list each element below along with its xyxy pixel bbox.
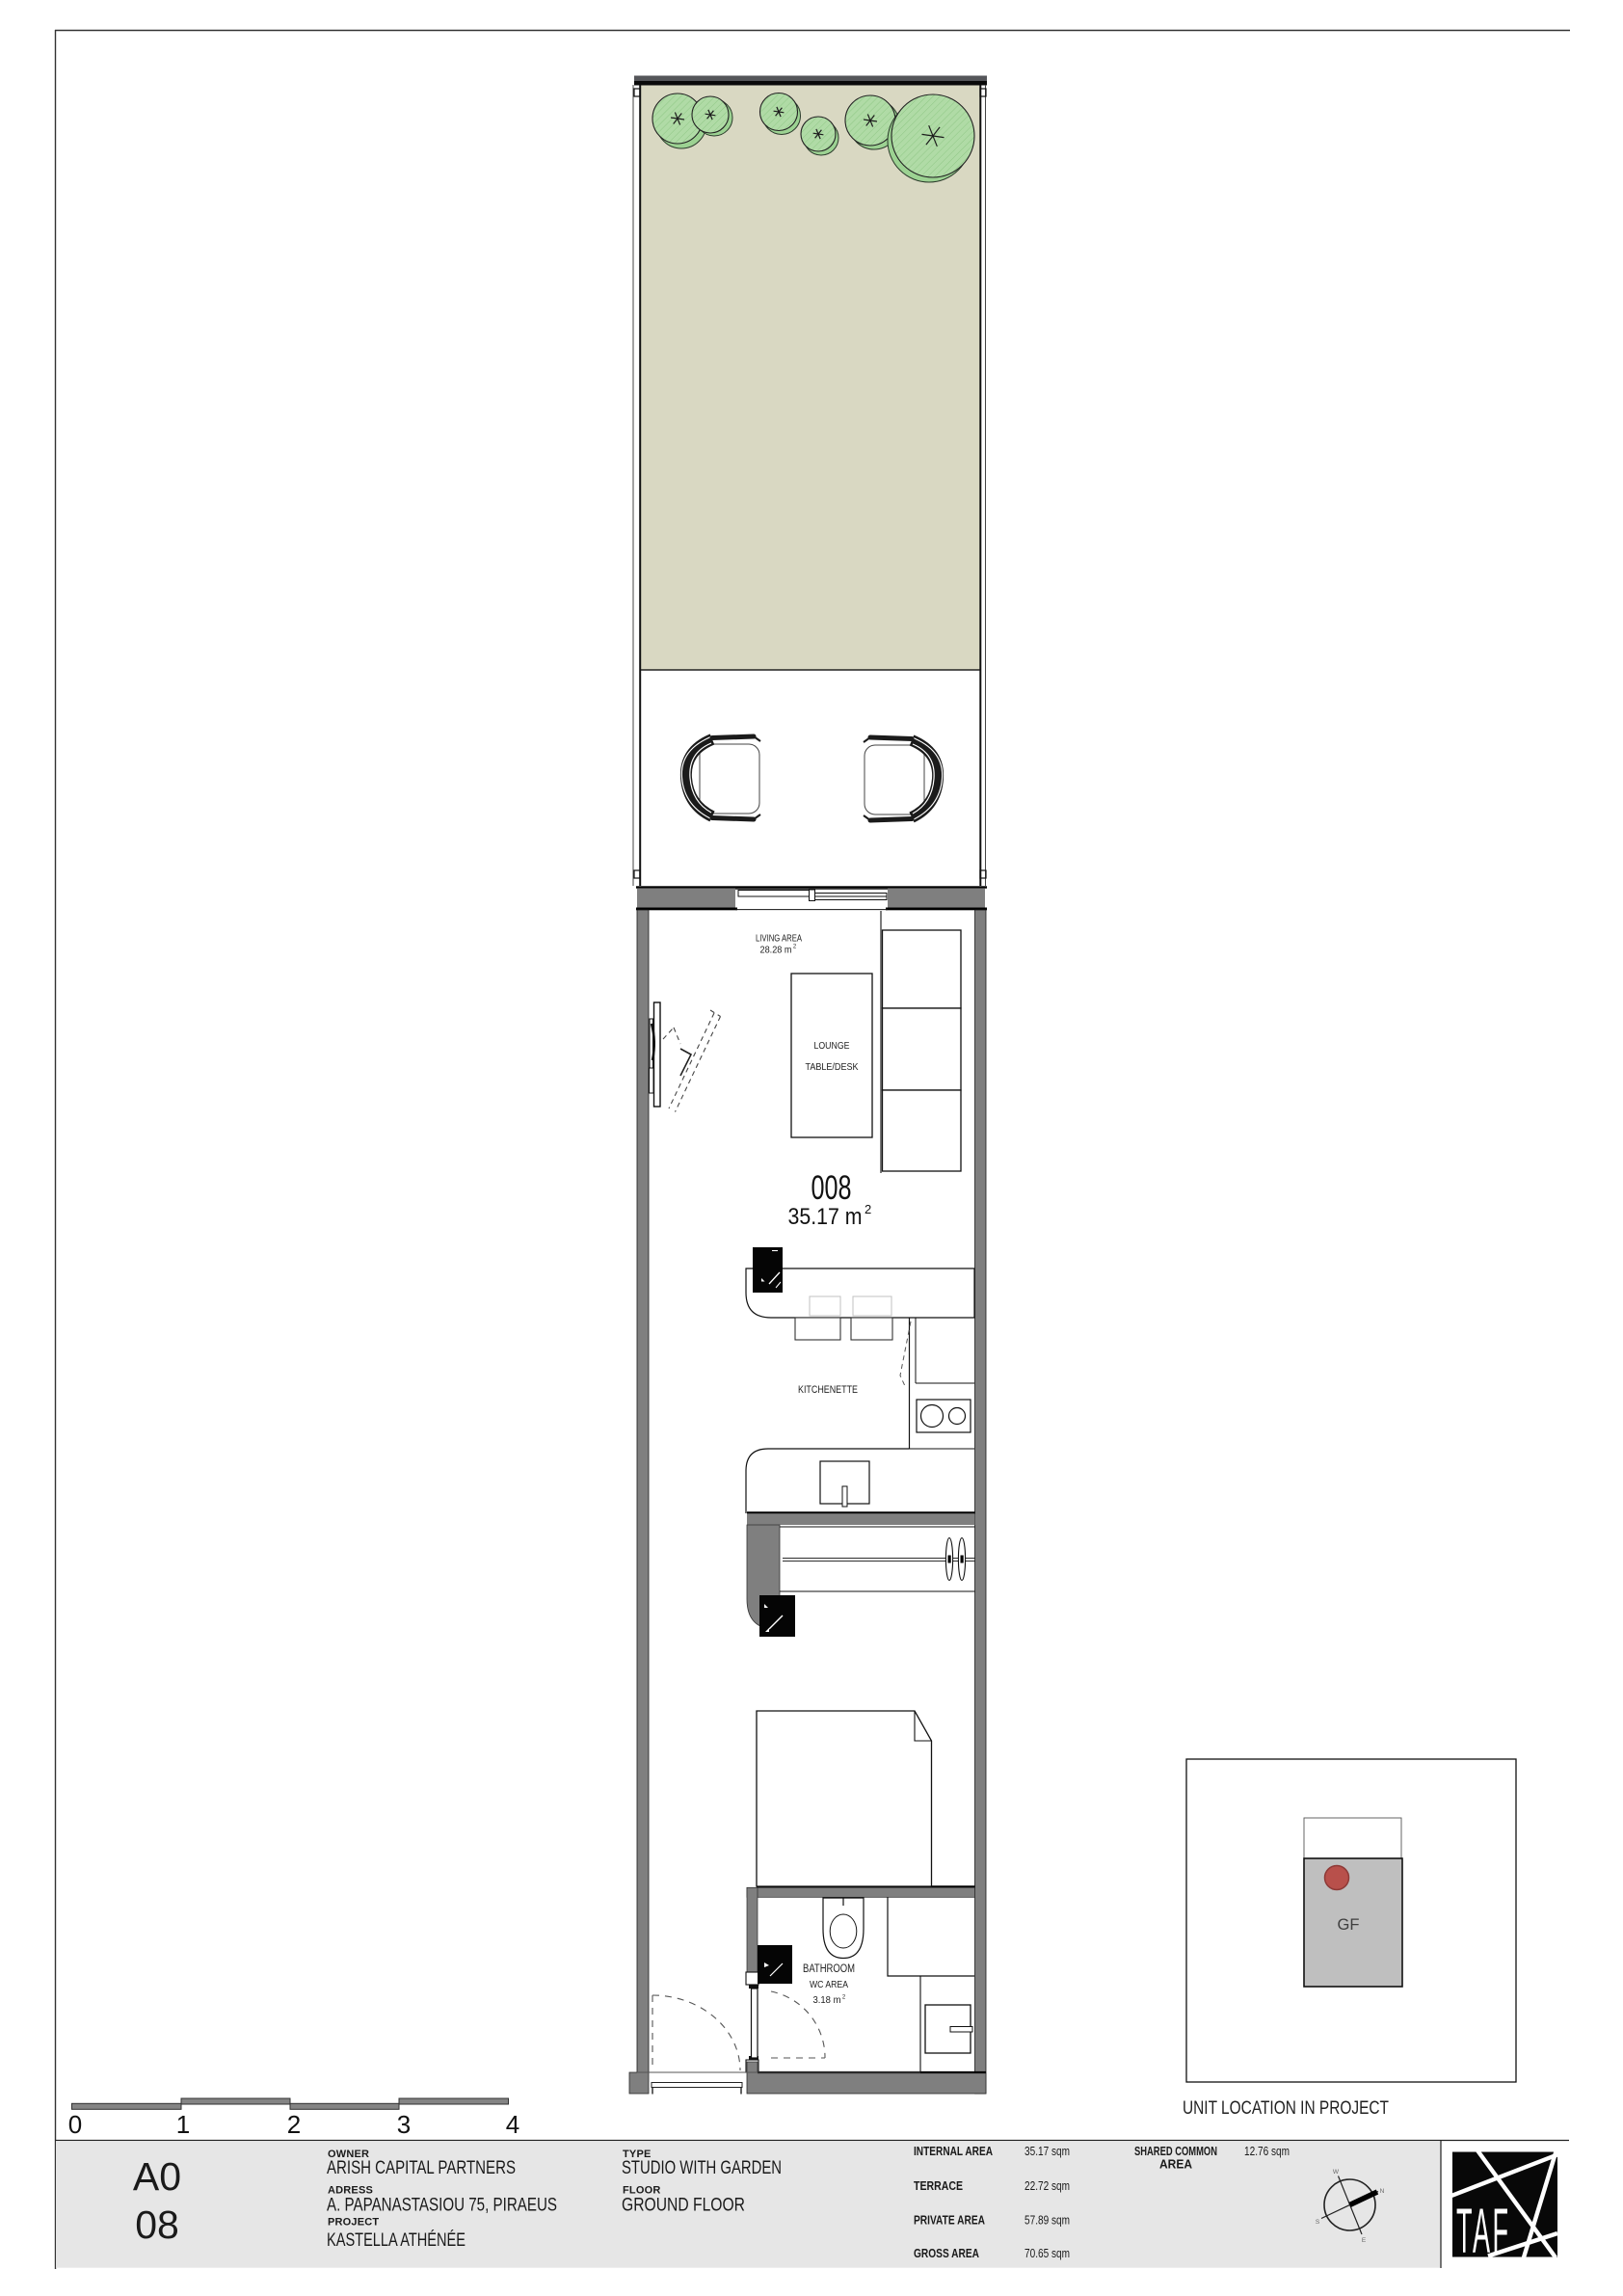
svg-text:28.28 m: 28.28 m <box>760 946 792 956</box>
svg-text:INTERNAL AREA: INTERNAL AREA <box>914 2145 993 2158</box>
svg-text:35.17 sqm: 35.17 sqm <box>1024 2144 1070 2158</box>
svg-text:008: 008 <box>811 1169 852 1207</box>
svg-text:PROJECT: PROJECT <box>328 2217 379 2229</box>
svg-text:AREA: AREA <box>1159 2158 1192 2172</box>
svg-text:2: 2 <box>287 2110 301 2139</box>
svg-text:E: E <box>1362 2237 1367 2244</box>
svg-text:12.76 sqm: 12.76 sqm <box>1244 2144 1290 2158</box>
svg-text:1: 1 <box>176 2110 190 2139</box>
svg-text:2: 2 <box>865 1202 871 1216</box>
svg-text:GF: GF <box>1338 1915 1360 1934</box>
svg-text:UNIT LOCATION IN PROJECT: UNIT LOCATION IN PROJECT <box>1183 2097 1389 2119</box>
svg-text:PRIVATE AREA: PRIVATE AREA <box>914 2214 985 2228</box>
svg-text:TABLE/DESK: TABLE/DESK <box>806 1061 859 1073</box>
svg-text:S: S <box>1316 2219 1320 2226</box>
svg-text:KITCHENETTE: KITCHENETTE <box>798 1384 858 1396</box>
svg-text:ARISH CAPITAL PARTNERS: ARISH CAPITAL PARTNERS <box>327 2157 516 2178</box>
svg-text:A0: A0 <box>133 2154 181 2199</box>
svg-text:4: 4 <box>506 2110 519 2139</box>
svg-text:3: 3 <box>397 2110 411 2139</box>
svg-text:70.65 sqm: 70.65 sqm <box>1024 2246 1070 2260</box>
svg-text:22.72 sqm: 22.72 sqm <box>1024 2178 1070 2193</box>
svg-text:A. PAPANASTASIOU 75, PIRAEUS: A. PAPANASTASIOU 75, PIRAEUS <box>327 2195 557 2216</box>
svg-text:35.17 m: 35.17 m <box>788 1204 863 1230</box>
svg-text:SHARED COMMON: SHARED COMMON <box>1134 2145 1217 2158</box>
svg-text:TAF: TAF <box>1456 2197 1511 2267</box>
svg-text:57.89 sqm: 57.89 sqm <box>1024 2213 1070 2228</box>
svg-text:08: 08 <box>135 2203 179 2247</box>
svg-text:KASTELLA ATHÉNÉE: KASTELLA ATHÉNÉE <box>327 2229 466 2251</box>
svg-text:N: N <box>1380 2188 1385 2195</box>
svg-text:STUDIO WITH GARDEN: STUDIO WITH GARDEN <box>622 2157 782 2178</box>
svg-text:0: 0 <box>68 2110 82 2139</box>
svg-text:WC AREA: WC AREA <box>810 1980 848 1990</box>
svg-text:LOUNGE: LOUNGE <box>814 1040 850 1052</box>
svg-text:TERRACE: TERRACE <box>914 2179 963 2193</box>
svg-text:3.18 m: 3.18 m <box>813 1995 841 2006</box>
svg-text:LIVING AREA: LIVING AREA <box>756 934 802 945</box>
svg-text:BATHROOM: BATHROOM <box>803 1963 855 1975</box>
svg-text:GROUND FLOOR: GROUND FLOOR <box>622 2195 745 2216</box>
svg-text:GROSS AREA: GROSS AREA <box>914 2247 979 2260</box>
svg-text:W: W <box>1333 2169 1340 2176</box>
